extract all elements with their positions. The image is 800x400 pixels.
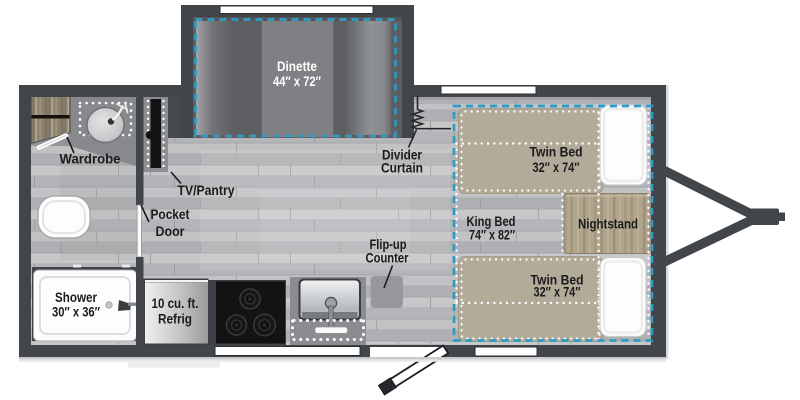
svg-text:Twin Bed: Twin Bed xyxy=(530,144,583,160)
svg-text:Refrig: Refrig xyxy=(158,312,192,327)
svg-text:10 cu. ft.: 10 cu. ft. xyxy=(152,296,199,311)
svg-text:Curtain: Curtain xyxy=(381,161,423,176)
svg-text:Door: Door xyxy=(156,224,186,239)
svg-text:32″ x 74″: 32″ x 74″ xyxy=(533,159,580,175)
svg-text:Counter: Counter xyxy=(366,251,410,266)
svg-text:TV/Pantry: TV/Pantry xyxy=(178,183,235,198)
svg-text:Dinette: Dinette xyxy=(277,59,317,74)
svg-text:Shower: Shower xyxy=(55,290,98,305)
svg-text:Nightstand: Nightstand xyxy=(578,217,638,232)
svg-text:74″ x 82″: 74″ x 82″ xyxy=(469,228,515,243)
svg-text:Pocket: Pocket xyxy=(151,207,190,222)
svg-text:32″ x 74″: 32″ x 74″ xyxy=(534,284,581,300)
svg-text:30″ x 36″: 30″ x 36″ xyxy=(52,305,100,320)
svg-text:44″ x 72″: 44″ x 72″ xyxy=(273,74,321,89)
svg-text:Wardrobe: Wardrobe xyxy=(60,152,121,167)
